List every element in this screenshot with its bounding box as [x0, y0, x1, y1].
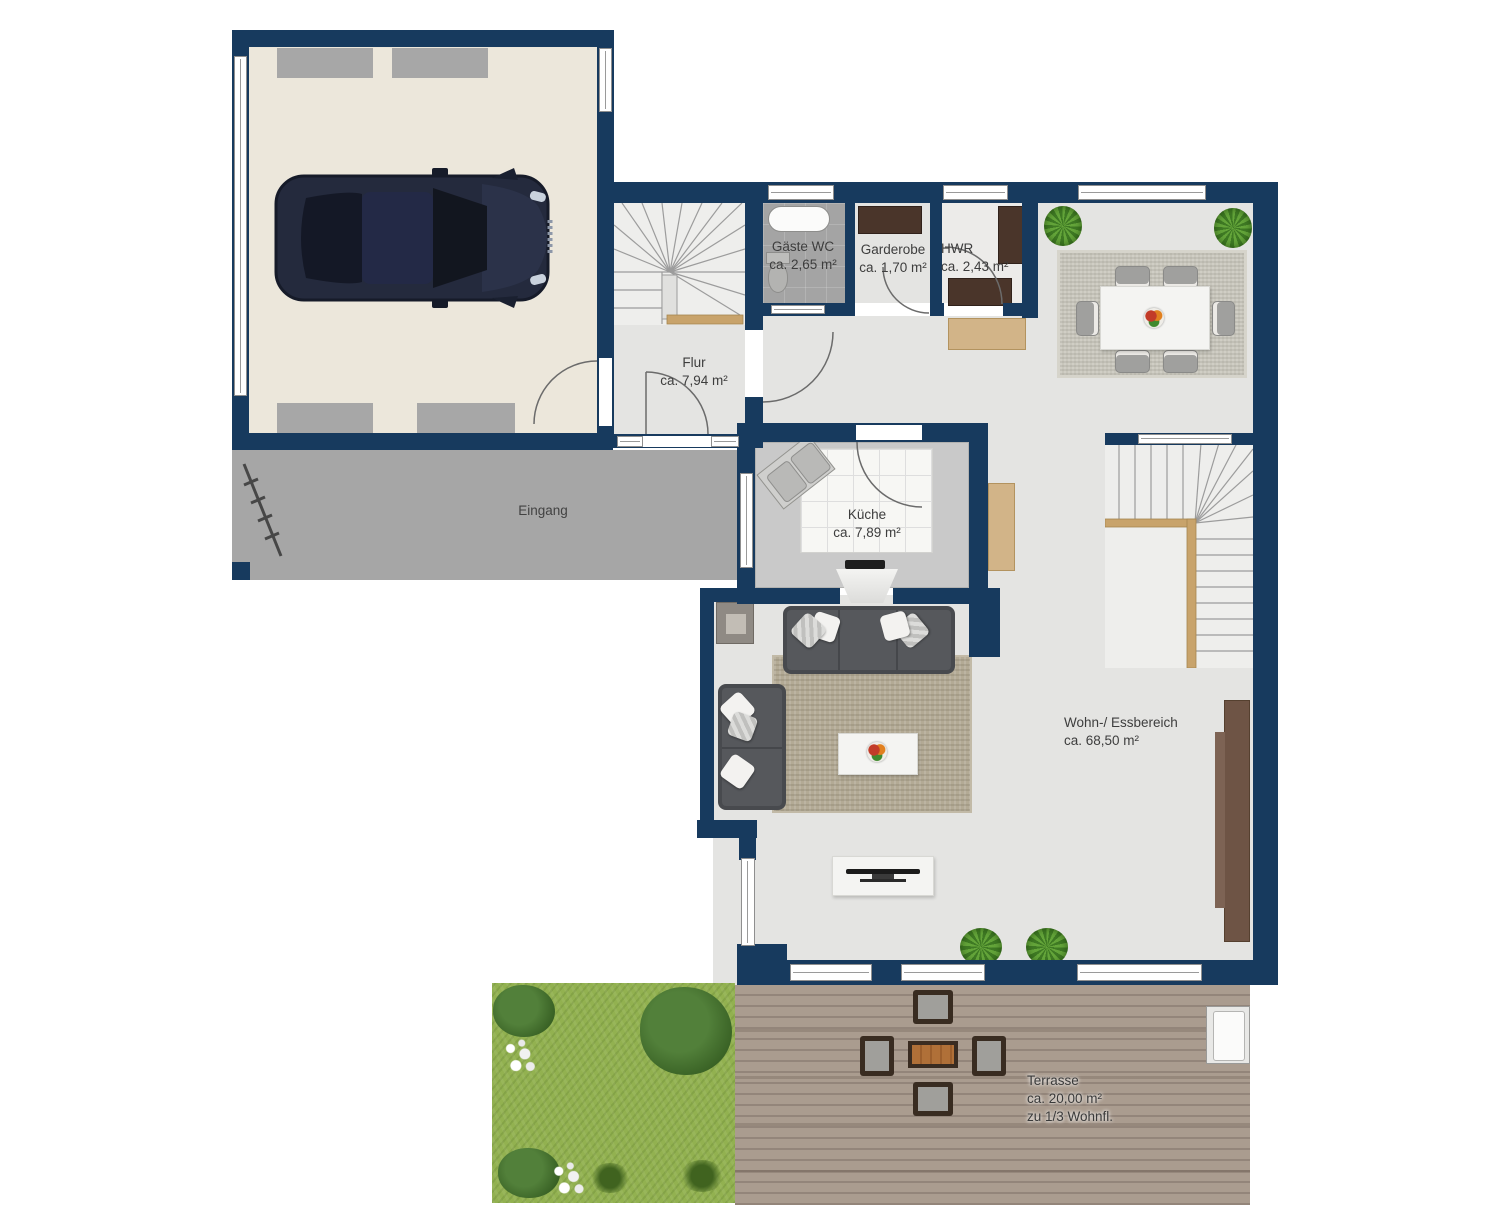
car-rear-window: [301, 193, 362, 284]
terrace-chair: [913, 1082, 953, 1116]
grill-lid: [1213, 1011, 1245, 1061]
dining-chair: [1212, 301, 1235, 336]
floor-plan: Gäste WC ca. 2,65 m² Garderobe ca. 1,70 …: [0, 0, 1500, 1230]
window: [1078, 185, 1206, 200]
wc-garderobe-wall: [845, 203, 855, 303]
room-label-terrasse: Terrasse ca. 20,00 m² zu 1/3 Wohnfl.: [1027, 1072, 1113, 1125]
kitchen-wall-south-b: [893, 588, 973, 604]
room-note: zu 1/3 Wohnfl.: [1027, 1109, 1113, 1124]
wall-sideboard: [1215, 732, 1225, 908]
window: [943, 185, 1008, 200]
room-label-hwr: HWR ca. 2,43 m²: [941, 240, 1009, 276]
side-table-top: [726, 614, 746, 634]
terrace-chair: [972, 1036, 1006, 1076]
hwr-dining-wall: [1022, 182, 1038, 318]
window: [234, 56, 247, 396]
room-area: ca. 2,65 m²: [769, 257, 837, 272]
plant-icon: [1214, 208, 1252, 248]
hall-lobby-opening: [745, 330, 763, 397]
room-area: ca. 68,50 m²: [1064, 733, 1139, 748]
fruit-bowl: [1144, 308, 1164, 328]
flower-patch: [497, 1035, 542, 1080]
room-area: ca. 7,94 m²: [660, 373, 728, 388]
grass-tuft: [590, 1163, 630, 1193]
kitchen-door-opening: [856, 425, 922, 440]
dining-chair: [1115, 350, 1150, 373]
dining-chair: [1163, 350, 1198, 373]
car-mirror: [492, 168, 518, 180]
room-label-garderobe: Garderobe ca. 1,70 m²: [859, 241, 927, 277]
window: [768, 185, 834, 200]
grill-box: [1206, 1006, 1250, 1064]
garage-shelf: [392, 48, 488, 78]
kitchen-wall-east: [969, 423, 988, 600]
room-label-gaeste-wc: Gäste WC ca. 2,65 m²: [769, 238, 837, 274]
sideboard-tan: [988, 483, 1015, 571]
hwr-wall-south: [1003, 303, 1022, 316]
garage-shelf: [277, 48, 373, 78]
room-name: Flur: [682, 355, 705, 370]
room-name: Wohn-/ Essbereich: [1064, 715, 1178, 730]
front-door-opening: [643, 436, 711, 447]
house-wall-right: [1253, 182, 1278, 985]
cooktop: [845, 560, 885, 569]
wardrobe: [858, 206, 922, 234]
living-wall-step-v: [739, 838, 756, 860]
main-staircase: [1105, 443, 1253, 668]
terrace-table: [908, 1041, 958, 1068]
garage-wall-bottom: [232, 433, 613, 450]
wall-sideboard: [1224, 700, 1250, 942]
room-name: Eingang: [518, 503, 568, 518]
window: [1138, 434, 1232, 444]
room-label-flur: Flur ca. 7,94 m²: [660, 354, 728, 390]
terrace-deck: [735, 985, 1250, 1205]
room-area: ca. 2,43 m²: [941, 259, 1009, 274]
dining-chair: [1076, 301, 1099, 336]
entrance-pillar: [232, 562, 250, 580]
hwr-appliance: [948, 278, 1012, 306]
living-wall-west: [700, 588, 714, 822]
hall-lobby-wall-upper: [745, 182, 763, 330]
newel-post: [662, 275, 677, 319]
winder-staircase: [614, 203, 745, 325]
room-label-wohn-essbereich: Wohn-/ Essbereich ca. 68,50 m²: [1064, 714, 1178, 750]
room-name: Küche: [848, 507, 886, 522]
wc-sink: [768, 206, 830, 232]
room-area: ca. 1,70 m²: [859, 260, 927, 275]
front-door-sidelight: [617, 436, 643, 447]
terrace-chair: [913, 990, 953, 1024]
wc-transom-window: [771, 305, 825, 314]
living-wall-step-h: [697, 820, 757, 838]
window: [599, 48, 612, 112]
front-door-sidelight: [711, 436, 739, 447]
window: [740, 473, 753, 568]
room-area: ca. 20,00 m²: [1027, 1091, 1102, 1106]
bush-icon: [640, 987, 732, 1075]
tv-base: [860, 879, 906, 882]
room-label-kueche: Küche ca. 7,89 m²: [833, 506, 901, 542]
stair-edge-board: [667, 315, 743, 324]
garderobe-wall-south: [825, 303, 855, 316]
terrace-sliding-door: [1077, 964, 1202, 981]
room-label-eingang: Eingang: [518, 502, 568, 520]
window: [790, 964, 872, 981]
stair-stringer-vertical: [1187, 519, 1196, 668]
entrance-path: [232, 450, 737, 580]
car-fin: [432, 168, 448, 176]
fruit-bowl: [867, 742, 887, 762]
side-table: [716, 602, 754, 644]
garage-shelf: [277, 403, 373, 433]
car-mirror: [492, 296, 518, 308]
terrace-chair: [860, 1036, 894, 1076]
room-name: Terrasse: [1027, 1073, 1079, 1088]
room-area: ca. 7,89 m²: [833, 525, 901, 540]
flower-patch: [545, 1158, 591, 1202]
car-icon: [266, 164, 562, 312]
window: [901, 964, 985, 981]
car-roof: [362, 192, 433, 284]
stair-stringer-horizontal: [1105, 519, 1195, 527]
garage-shelf: [417, 403, 515, 433]
living-wall-northwest: [700, 588, 757, 602]
window: [741, 858, 755, 946]
bush-icon: [493, 985, 555, 1037]
room-name: Garderobe: [861, 242, 926, 257]
garage-wall-top: [232, 30, 613, 47]
living-wall-stub: [969, 588, 1000, 657]
car-fin: [432, 300, 448, 308]
divider-foot: [930, 303, 944, 316]
plant-icon: [1044, 206, 1082, 246]
grass-tuft: [680, 1160, 724, 1192]
garage-door-opening: [599, 358, 612, 426]
room-name: HWR: [941, 241, 973, 256]
room-name: Gäste WC: [772, 239, 834, 254]
bench: [948, 318, 1026, 350]
